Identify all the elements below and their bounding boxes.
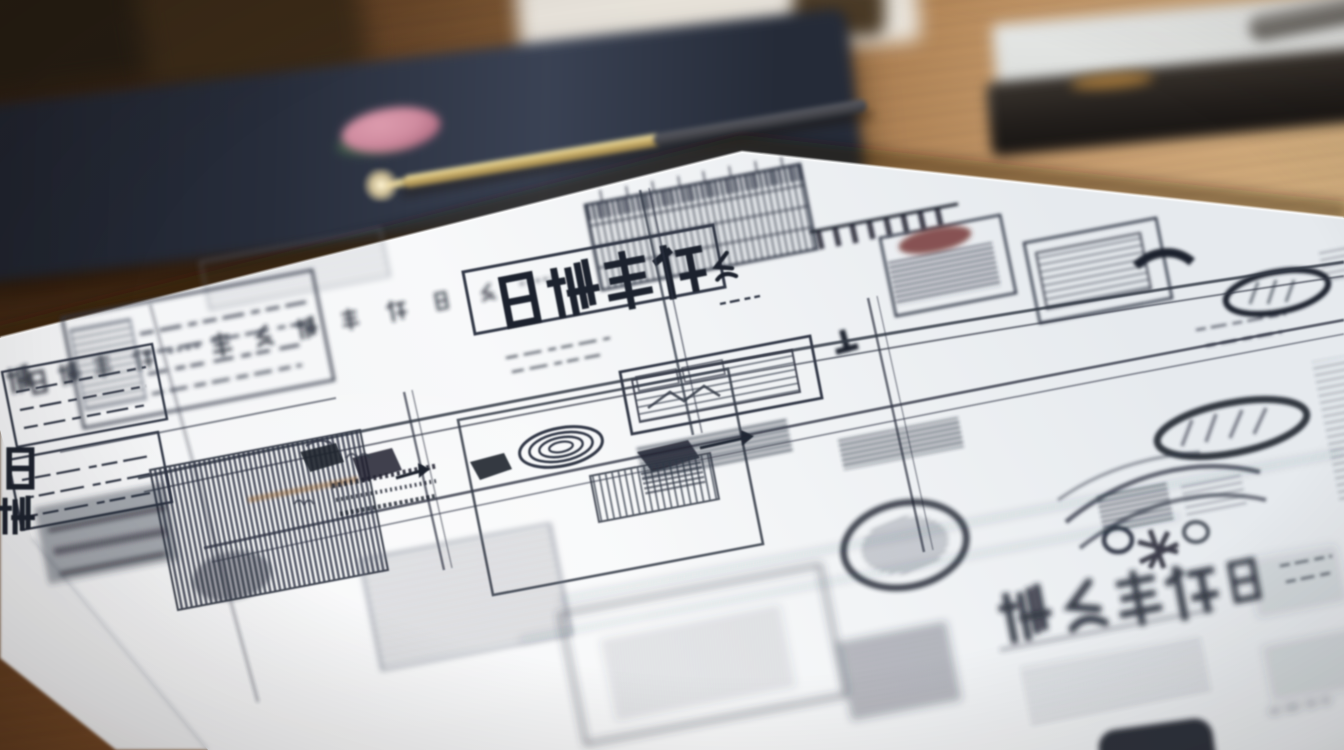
photo-scene (0, 0, 1344, 750)
wireframe-paper (0, 0, 1344, 750)
